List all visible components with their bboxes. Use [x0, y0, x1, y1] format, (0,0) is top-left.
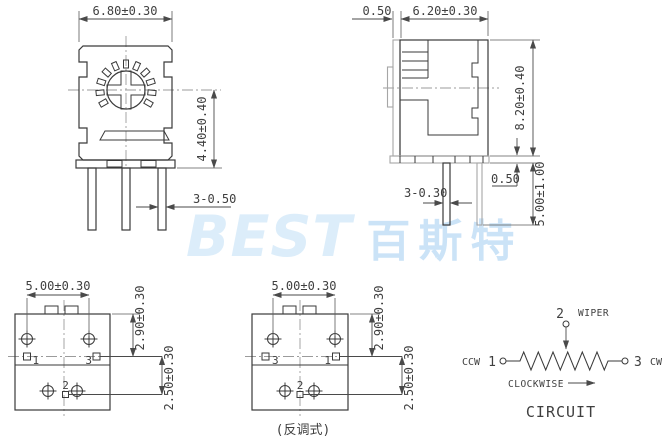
dim-bottom-rev-lower-text: 2.50±0.30 — [402, 345, 416, 410]
front-pin-3 — [158, 168, 166, 230]
circuit-diagram: 2 WIPER CCW 1 3 CW CLOCKWISE CIRCUIT — [462, 307, 663, 421]
dim-bottom-rev-width: 5.00±0.30 — [271, 279, 336, 336]
circuit-terminal-3 — [622, 358, 628, 364]
bottom-std-label-3: 3 — [85, 354, 92, 367]
front-bottom-wedge — [100, 131, 169, 140]
circuit-clockwise-label: CLOCKWISE — [508, 379, 564, 390]
dim-bottom-rev-lower: 2.50±0.30 — [402, 345, 416, 410]
front-base — [76, 160, 175, 168]
dim-side-pin-length-text: 5.00±1.00 — [533, 161, 547, 226]
circuit-cw-number: 3 — [634, 355, 642, 370]
dim-bottom-rev-width-text: 5.00±0.30 — [271, 279, 336, 293]
circuit-wiper-number: 2 — [556, 307, 564, 322]
side-view: 0.50 6.20±0.30 8.20±0.40 0.50 — [352, 4, 547, 227]
dim-front-pin-width: 3-0.50 — [136, 192, 236, 207]
front-pin-2 — [122, 168, 130, 230]
side-grooves — [402, 40, 428, 78]
tick — [144, 99, 153, 107]
tick — [99, 99, 108, 107]
bottom-std-tab — [45, 306, 58, 314]
dim-bottom-rev-upper-text: 2.90±0.30 — [372, 285, 386, 350]
side-pin-back — [477, 163, 482, 225]
bottom-rev-tab — [303, 306, 316, 314]
tick — [97, 78, 106, 85]
rotor-lip-side — [393, 40, 400, 156]
dim-front-width-text: 6.80±0.30 — [92, 4, 157, 18]
dim-side-lip-text: 0.50 — [363, 4, 392, 18]
side-inner-contour — [400, 40, 478, 135]
circuit-wiper-terminal — [563, 321, 569, 327]
dim-bottom-std-upper-text: 2.90±0.30 — [133, 285, 147, 350]
bottom-rev-label-1: 1 — [324, 354, 331, 367]
bottom-view-reverse: 3 1 2 5.00±0.30 2.90±0.30 2.50±0.30 (反调式… — [245, 279, 416, 438]
rotor-boss-side — [388, 67, 394, 107]
tick — [133, 62, 141, 71]
circuit-ccw-label: CCW — [462, 357, 481, 368]
bottom-rev-label-3: 3 — [272, 354, 279, 367]
circuit-terminal-1 — [500, 358, 506, 364]
side-base — [390, 156, 489, 163]
tick — [141, 68, 150, 77]
side-body-outline — [400, 40, 488, 156]
dim-front-height-text: 4.40±0.40 — [195, 96, 209, 161]
dim-side-pin-width: 3-0.30 — [404, 186, 472, 203]
bottom-rev-tab — [283, 306, 296, 314]
dim-front-height: 4.40±0.40 — [177, 90, 222, 168]
circuit-title: CIRCUIT — [526, 403, 596, 421]
dim-bottom-std-upper: 2.90±0.30 — [112, 285, 147, 356]
side-base-tabs — [400, 156, 483, 163]
front-body-outline — [79, 46, 172, 160]
tick — [111, 62, 119, 71]
circuit-wiper-label: WIPER — [578, 308, 609, 319]
technical-drawing-trimmer-potentiometer: BEST百斯特 — [0, 0, 669, 445]
tick — [148, 90, 156, 96]
dim-side-height: 8.20±0.40 — [490, 40, 540, 156]
dim-front-pin-width-text: 3-0.50 — [193, 192, 236, 206]
dim-side-width-text: 6.20±0.30 — [412, 4, 477, 18]
dim-side-lip: 0.50 — [352, 4, 393, 38]
tick — [102, 68, 111, 77]
bottom-rev-caption: (反调式) — [276, 423, 331, 438]
bottom-rev-label-2: 2 — [297, 379, 304, 392]
dim-bottom-std-width-text: 5.00±0.30 — [25, 279, 90, 293]
dim-side-height-text: 8.20±0.40 — [513, 65, 527, 130]
front-view: 6.80±0.30 4.40±0.40 3-0.50 — [68, 4, 236, 230]
bottom-std-label-1: 1 — [33, 354, 40, 367]
dim-bottom-rev-upper: 2.90±0.30 — [350, 285, 386, 356]
tick — [146, 78, 155, 85]
dim-bottom-std-lower: 2.50±0.30 — [162, 345, 176, 410]
front-base-slot — [107, 161, 122, 168]
bottom-std-terminal-2 — [63, 392, 69, 398]
bottom-std-tab — [65, 306, 78, 314]
dim-side-base-text: 0.50 — [491, 172, 520, 186]
dim-bottom-std-lower-text: 2.50±0.30 — [162, 345, 176, 410]
front-pin-1 — [88, 168, 96, 230]
dim-front-width: 6.80±0.30 — [79, 4, 172, 42]
bottom-std-label-2: 2 — [62, 379, 69, 392]
resistor-zigzag — [506, 352, 622, 370]
bottom-view-standard: 1 3 2 5.00±0.30 2.90±0.30 2.50±0.30 — [8, 279, 176, 416]
dim-side-pin-width-text: 3-0.30 — [404, 186, 447, 200]
circuit-ccw-number: 1 — [488, 355, 496, 370]
front-base-slot — [141, 161, 156, 168]
dim-side-width: 6.20±0.30 — [401, 4, 488, 38]
circuit-cw-label: CW — [650, 357, 663, 368]
tick — [96, 90, 104, 96]
drawing-sheet: 6.80±0.30 4.40±0.40 3-0.50 — [0, 0, 669, 445]
